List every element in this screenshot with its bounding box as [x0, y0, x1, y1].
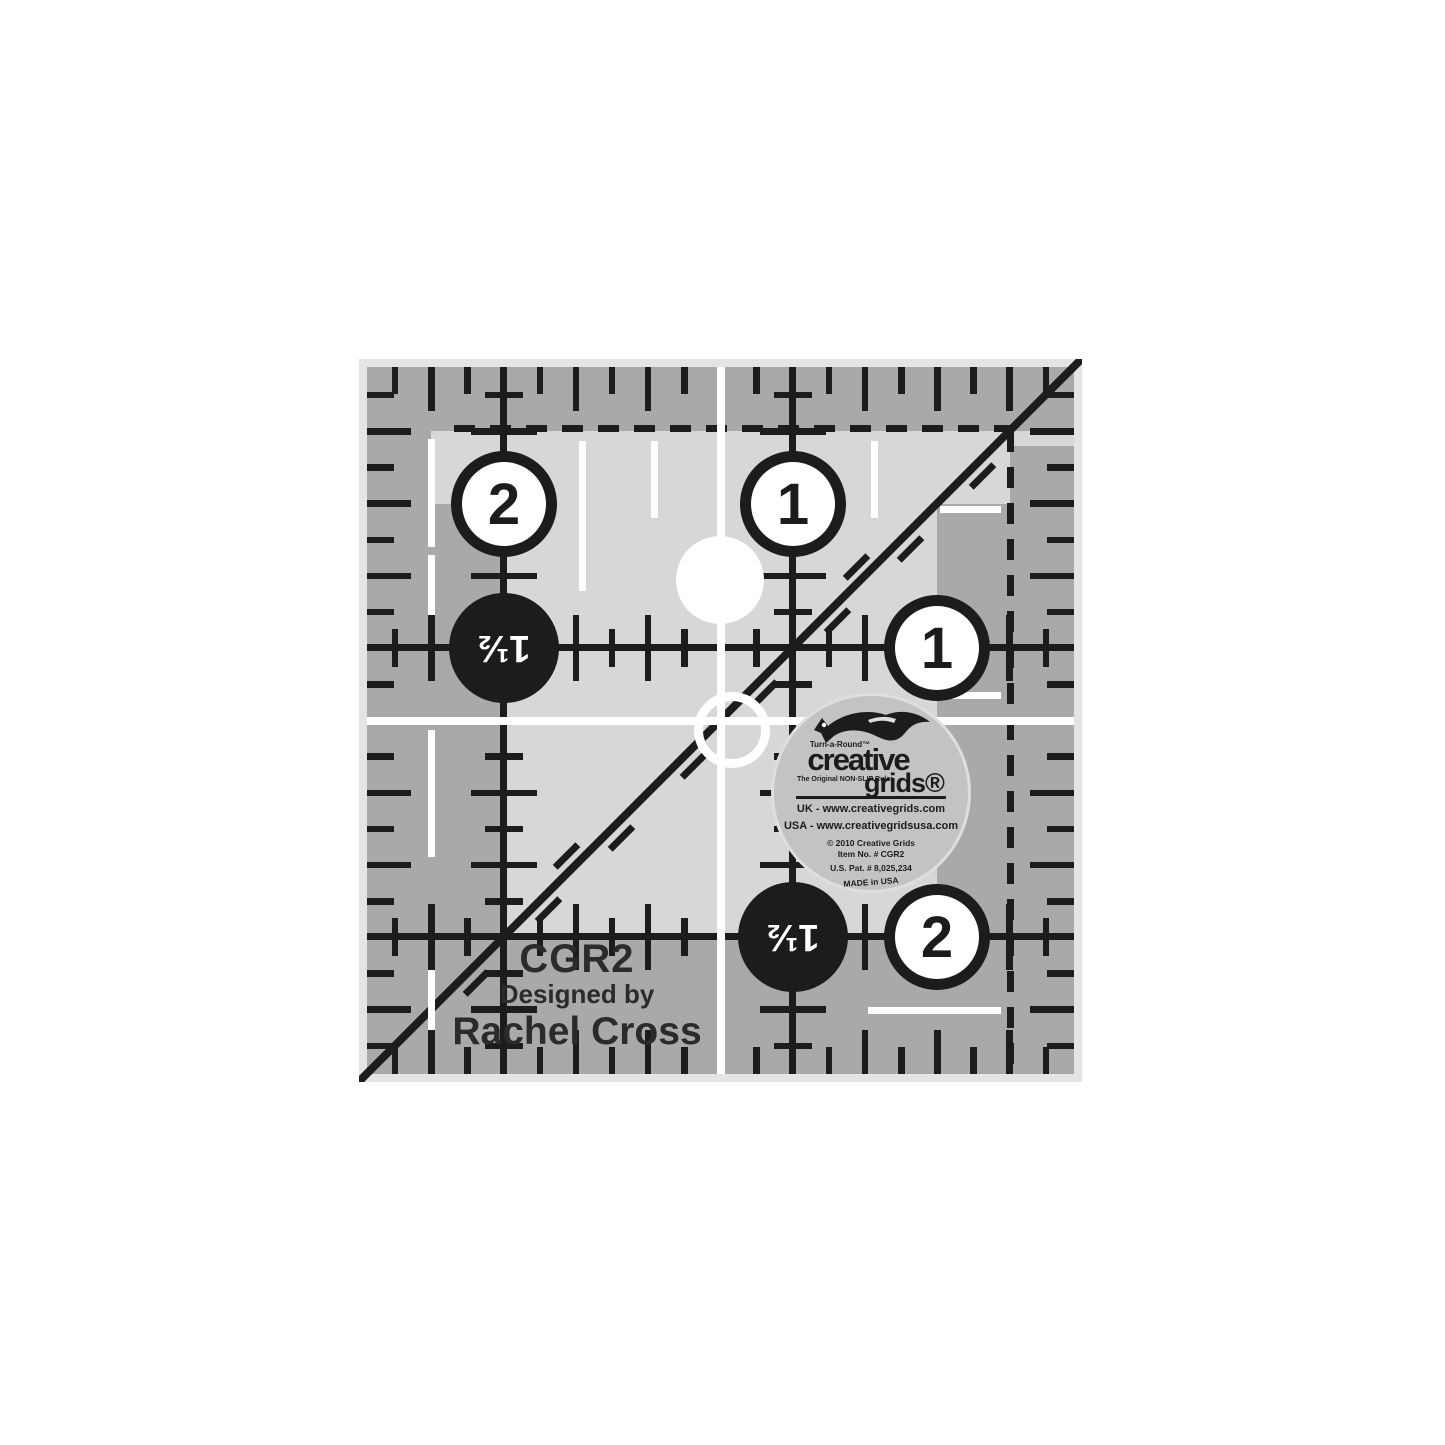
tick-mark	[367, 862, 411, 869]
tick-mark	[609, 367, 616, 394]
white-accent-line	[871, 441, 878, 518]
model-number: CGR2	[449, 939, 705, 979]
tick-mark	[826, 367, 833, 394]
badge-label: 1½	[478, 627, 531, 670]
tick-mark	[367, 970, 394, 977]
tick-mark	[1043, 1047, 1050, 1074]
tick-mark	[392, 367, 399, 394]
tick-mark	[774, 681, 812, 688]
badge-label: 2	[921, 904, 953, 971]
tick-mark	[1043, 629, 1050, 667]
tick-mark	[1047, 1043, 1074, 1050]
sticker-item-number: Item No. # CGR2	[774, 849, 968, 859]
white-accent-line	[428, 730, 435, 857]
tick-mark	[573, 367, 580, 411]
tick-mark	[367, 790, 411, 797]
tick-mark	[862, 1030, 869, 1074]
tick-mark	[471, 790, 537, 797]
tick-mark	[392, 629, 399, 667]
tick-mark	[367, 573, 411, 580]
tick-mark	[862, 367, 869, 411]
tick-mark	[645, 615, 652, 681]
tick-mark	[1006, 367, 1013, 411]
white-dot	[676, 536, 764, 624]
measure-badge-half-bottom: 1½	[738, 882, 848, 992]
badge-label: 2	[488, 471, 520, 538]
tick-mark	[753, 367, 760, 394]
tick-mark	[753, 1047, 760, 1074]
sticker-tagline: The Original NON-SLIP Ruler	[722, 776, 968, 783]
tick-mark	[367, 1043, 394, 1050]
tick-mark	[367, 464, 394, 471]
tick-mark	[760, 1006, 826, 1013]
tick-mark	[367, 537, 394, 544]
tick-mark	[774, 392, 812, 399]
tick-mark	[485, 898, 523, 905]
tick-mark	[970, 367, 977, 394]
tick-mark	[1047, 753, 1074, 760]
tick-mark	[537, 367, 544, 394]
badge-label: 1	[777, 471, 809, 538]
product-photo: 2 1 1 2 1½ 1½ Turn-a-Round™ creative gri…	[0, 0, 1445, 1445]
tick-mark	[934, 367, 941, 411]
tick-mark	[1047, 970, 1074, 977]
tick-mark	[1030, 790, 1074, 797]
measure-badge-1-right: 1	[884, 595, 990, 701]
tick-mark	[970, 1047, 977, 1074]
tick-mark	[1047, 826, 1074, 833]
tick-mark	[1047, 681, 1074, 688]
white-accent-line	[428, 439, 435, 547]
badge-label: 1½	[767, 916, 820, 959]
tick-mark	[760, 428, 826, 435]
tick-mark	[573, 615, 580, 681]
white-accent-line	[579, 441, 586, 591]
tick-mark	[471, 428, 537, 435]
tick-mark	[1030, 500, 1074, 507]
tick-mark	[392, 1047, 399, 1074]
tick-mark	[367, 428, 411, 435]
white-accent-line	[940, 506, 1001, 513]
tick-mark	[367, 898, 394, 905]
tick-mark	[428, 367, 435, 411]
tick-mark	[1043, 918, 1050, 956]
tick-mark	[1043, 367, 1050, 394]
brand-sticker: Turn-a-Round™ creative grids® The Origin…	[771, 693, 971, 893]
tick-mark	[485, 392, 523, 399]
tick-mark	[774, 609, 812, 616]
tick-mark	[609, 629, 616, 667]
tick-mark	[826, 1047, 833, 1074]
sticker-brand-sub: grids®	[840, 768, 968, 799]
tick-mark	[428, 615, 435, 681]
tick-mark	[1047, 898, 1074, 905]
tick-mark	[774, 1043, 812, 1050]
tick-mark	[367, 609, 394, 616]
tick-mark	[1047, 537, 1074, 544]
tick-mark	[826, 629, 833, 667]
tick-mark	[1006, 1030, 1013, 1074]
tick-mark	[1030, 862, 1074, 869]
tick-mark	[367, 826, 394, 833]
designer-name: Rachel Cross	[449, 1010, 705, 1055]
tick-mark	[1030, 573, 1074, 580]
tick-mark	[898, 1047, 905, 1074]
white-accent-line	[651, 441, 658, 518]
tick-mark	[681, 629, 688, 667]
tick-mark	[645, 367, 652, 411]
badge-label: 1	[921, 615, 953, 682]
tick-mark	[367, 500, 411, 507]
tick-mark	[1030, 1006, 1074, 1013]
tick-mark	[1006, 904, 1013, 970]
quarter-line-top	[454, 425, 1010, 432]
tick-mark	[471, 573, 537, 580]
tick-mark	[471, 862, 537, 869]
tick-mark	[392, 918, 399, 956]
model-text-block: CGR2 Designed by Rachel Cross	[449, 939, 705, 1055]
quilting-ruler: 2 1 1 2 1½ 1½ Turn-a-Round™ creative gri…	[359, 359, 1082, 1082]
sticker-copyright: © 2010 Creative Grids	[774, 838, 968, 848]
tick-mark	[934, 1030, 941, 1074]
quarter-line-right	[1007, 431, 1014, 1074]
sticker-divider	[796, 796, 946, 799]
tick-mark	[862, 615, 869, 681]
tick-mark	[1047, 464, 1074, 471]
tick-mark	[1006, 615, 1013, 681]
tick-mark	[367, 1006, 411, 1013]
tick-mark	[428, 904, 435, 970]
tick-mark	[367, 681, 394, 688]
tick-mark	[1047, 392, 1074, 399]
tick-mark	[464, 367, 471, 394]
measure-badge-half-left: 1½	[449, 593, 559, 703]
tick-mark	[485, 826, 523, 833]
designed-by-label: Designed by	[449, 979, 705, 1010]
white-accent-line	[868, 1007, 1001, 1014]
tick-mark	[367, 392, 394, 399]
tick-mark	[428, 1030, 435, 1074]
tick-mark	[1047, 609, 1074, 616]
tick-mark	[1030, 428, 1074, 435]
tick-mark	[862, 904, 869, 970]
tick-mark	[367, 753, 394, 760]
sticker-uk-url: UK - www.creativegrids.com	[774, 803, 968, 815]
measure-badge-2-topleft: 2	[451, 451, 557, 557]
tick-mark	[898, 367, 905, 394]
measure-badge-1-top: 1	[740, 451, 846, 557]
tick-mark	[485, 753, 523, 760]
sticker-usa-url: USA - www.creativegridsusa.com	[774, 820, 968, 832]
tick-mark	[753, 629, 760, 667]
tick-mark	[760, 573, 826, 580]
measure-badge-2-bottomright: 2	[884, 884, 990, 990]
tick-mark	[681, 367, 688, 394]
